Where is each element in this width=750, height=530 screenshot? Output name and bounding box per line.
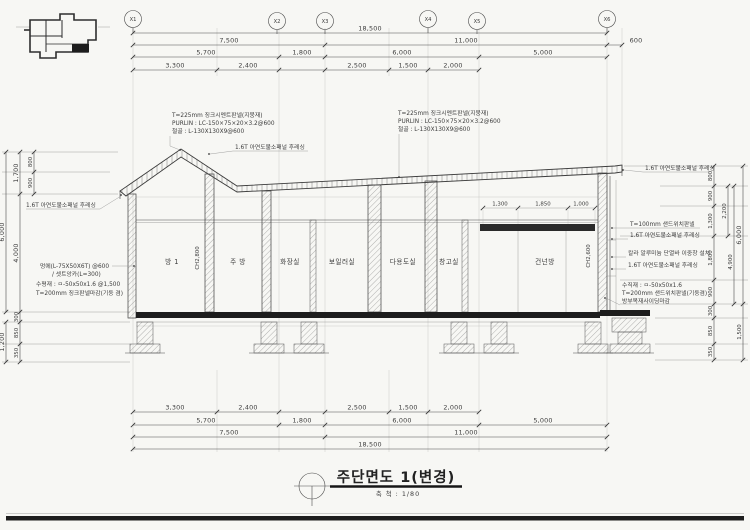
dim-right-4900: 4,900 (728, 254, 734, 270)
bottom-dimensions: 3,300 2,400 2,500 1,500 2,000 5,700 1,80… (131, 404, 609, 452)
dim-right-350: 350 (708, 346, 714, 357)
ceiling-height-right: CH2,600 (586, 244, 592, 268)
dim-bot-1500: 1,500 (398, 404, 417, 412)
note-sandwich100: T=100mm 샌드위치판넬 (611, 220, 700, 229)
note-flashing-sill-text: 1.6T 아연도불소패널 후레싱 (628, 261, 698, 269)
left-exterior-wall (128, 194, 136, 318)
dim-top-7500: 7,500 (219, 37, 238, 45)
drawing-title: 주단면도 1(변경) (337, 468, 455, 486)
note-flashing-right-text: 1.6T 아연도불소패널 후레싱 (645, 164, 715, 172)
right-exterior-wall (598, 173, 607, 312)
dim-bot-5000: 5,000 (533, 417, 552, 425)
partition-wall (262, 191, 271, 312)
title-block: 주단면도 1(변경) 축 척 : 1/80 (294, 468, 462, 506)
note-roof-left-2: PURLIN : LC-150×75×20×3.2@600 (172, 121, 275, 127)
dim-window-1300: 1,300 (492, 202, 508, 208)
dim-top-overhang-600: 600 (630, 37, 643, 45)
note-left-lower-block: 멍에(L-75X50X6T) @600 / 셋트앙카(L=300) 수평재 : … (35, 262, 135, 297)
room-label-utility: 다용도실 (390, 257, 416, 266)
dim-top-3300: 3,300 (165, 62, 184, 70)
drawing-svg: X1 X2 X3 X4 X5 X6 18,500 7,500 11,000 60… (0, 0, 750, 530)
dim-right-1500: 1,500 (737, 324, 743, 340)
dim-right-2200: 2,200 (722, 203, 728, 219)
dim-top-overall: 18,500 (358, 25, 382, 33)
room-label-bang1: 방 1 (165, 257, 179, 266)
dim-top-6000: 6,000 (392, 49, 411, 57)
partition-wall (368, 185, 381, 312)
dim-right-300: 300 (708, 305, 714, 316)
dim-left-900: 900 (28, 177, 34, 188)
drawing-scale: 축 척 : 1/80 (376, 489, 420, 498)
dim-right-900u: 900 (708, 190, 714, 201)
dim-right-6000: 6,000 (735, 225, 743, 244)
dim-window-1000: 1,000 (573, 202, 589, 208)
dim-left-350: 350 (14, 347, 20, 358)
partition-wall (310, 220, 316, 312)
dim-top-2500: 2,500 (347, 62, 366, 70)
dim-bot-6000: 6,000 (392, 417, 411, 425)
room-label-boiler: 보일러실 (329, 257, 355, 266)
room-label-storage: 창고실 (439, 257, 459, 266)
dim-bot-2500: 2,500 (347, 404, 366, 412)
room-label-kitchen: 주 방 (230, 257, 246, 266)
dim-right-1300: 1,300 (708, 213, 714, 229)
border-heavy-bar (6, 516, 744, 521)
floor-slab (136, 312, 600, 318)
grid-label-x3: X3 (322, 19, 329, 25)
note-zinc-panel-text: T=200mm 징크판넬마감(기둥 겸) (35, 289, 123, 297)
dim-left-850: 850 (14, 327, 20, 338)
top-dimensions: 18,500 7,500 11,000 600 5,700 1,800 6,00… (131, 25, 643, 73)
grid-label-x5: X5 (474, 19, 481, 25)
note-flashing-left-text: 1.6T 아연도불소패널 후레싱 (26, 201, 96, 209)
key-plan-thumbnail (16, 14, 110, 58)
dim-top-1800: 1,800 (292, 49, 311, 57)
note-flashing-ridge: 1.6T 아연도불소패널 후레싱 (208, 143, 308, 155)
dim-left-800: 800 (28, 156, 34, 167)
note-window-text: 칼라 알루미늄 단열바 이중창 설치 (628, 249, 710, 257)
dim-top-11000: 11,000 (454, 37, 478, 45)
room-label-bathroom: 화장실 (280, 257, 300, 266)
left-dimensions: 6,000 1,200 1,700 4,000 300 850 350 800 … (0, 150, 130, 364)
dim-bot-3300: 3,300 (165, 404, 184, 412)
room-label-geonneonbang: 건넌방 (535, 257, 555, 266)
dim-left-1700: 1,700 (12, 163, 20, 182)
note-roof-left-1: T=225mm 징크시멘트판넬(지붕재) (171, 111, 262, 119)
note-flashing-wall-text: 1.6T 아연도불소패널 후레싱 (630, 231, 700, 239)
note-window: 칼라 알루미늄 단열바 이중창 설치 (611, 249, 710, 258)
dim-left-4000: 4,000 (12, 243, 20, 262)
key-plan-filled-room (72, 44, 89, 52)
dim-bot-1800: 1,800 (292, 417, 311, 425)
note-flashing-left-eave: 1.6T 아연도불소패널 후레싱 (26, 194, 122, 209)
partition-wall (425, 181, 437, 312)
note-roof-right-3: 철골 : L-130X130X9@600 (398, 125, 470, 133)
dim-left-300: 300 (14, 311, 20, 322)
dim-top-5000: 5,000 (533, 49, 552, 57)
note-sandwich100-text: T=100mm 샌드위치판넬 (629, 220, 695, 228)
dim-bot-2400: 2,400 (238, 404, 257, 412)
note-flashing-ridge-text: 1.6T 아연도불소패널 후레싱 (235, 143, 305, 151)
note-flashing-wall: 1.6T 아연도불소패널 후레싱 (611, 231, 700, 240)
dim-right-900l: 900 (708, 286, 714, 297)
note-joist-text: 멍에(L-75X50X6T) @600 (40, 262, 109, 270)
dim-top-1500: 1,500 (398, 62, 417, 70)
grid-label-x1: X1 (130, 17, 137, 23)
partition-wall (205, 174, 214, 312)
dim-top-2000: 2,000 (443, 62, 462, 70)
note-siding-text: 방부목재사이딩마감 (622, 297, 671, 305)
dim-bot-2000: 2,000 (443, 404, 462, 412)
note-roof-left-3: 철골 : L-130X130X9@600 (172, 127, 244, 135)
dim-bot-overall: 18,500 (358, 441, 382, 449)
section-drawing-sheet: X1 X2 X3 X4 X5 X6 18,500 7,500 11,000 60… (0, 0, 750, 530)
dim-bot-7500: 7,500 (219, 429, 238, 437)
dim-bot-11000: 11,000 (454, 429, 478, 437)
window-dimensions: 1,300 1,850 1,000 (481, 202, 597, 225)
note-sandwich200-text: T=200mm 샌드위치판넬(기둥겸) (621, 289, 707, 297)
note-roof-right-2: PURLIN : LC-150×75×20×3.2@600 (398, 119, 501, 125)
window-head-band (480, 224, 595, 231)
note-vertical-member-text: 수직재 : ㅁ-50x50x1.6 (622, 281, 682, 289)
building-section: 방 1 주 방 화장실 보일러실 다용도실 창고실 건넌방 CH2,800 CH… (120, 149, 654, 353)
partition-wall (462, 220, 468, 312)
note-anchor-text: / 셋트앙카(L=300) (52, 270, 101, 278)
note-flashing-sill: 1.6T 아연도불소패널 후레싱 (611, 261, 698, 270)
footings (125, 318, 654, 353)
dim-top-5700: 5,700 (196, 49, 215, 57)
porch-slab (600, 310, 650, 316)
note-right-lower-block: 수직재 : ㅁ-50x50x1.6 T=200mm 샌드위치판넬(기둥겸) 방부… (604, 281, 707, 305)
dim-top-2400: 2,400 (238, 62, 257, 70)
note-roof-right: T=225mm 징크시멘트판넬(지붕재) PURLIN : LC-150×75×… (397, 109, 501, 178)
grid-label-x6: X6 (604, 17, 611, 23)
dim-bot-5700: 5,700 (196, 417, 215, 425)
dim-left-6000: 6,000 (0, 222, 6, 241)
grid-label-x2: X2 (274, 19, 281, 25)
dim-right-850: 850 (708, 325, 714, 336)
note-horizontal-member-text: 수평재 : ㅁ-50x50x1.6 @1,500 (36, 280, 120, 288)
dim-left-1200: 1,200 (0, 332, 6, 351)
note-roof-right-1: T=225mm 징크시멘트판넬(지붕재) (397, 109, 488, 117)
dim-window-1850: 1,850 (535, 202, 551, 208)
grid-label-x4: X4 (425, 17, 433, 23)
note-flashing-right-eave: 1.6T 아연도불소패널 후레싱 (622, 164, 715, 172)
ceiling-height-left: CH2,800 (195, 246, 201, 270)
